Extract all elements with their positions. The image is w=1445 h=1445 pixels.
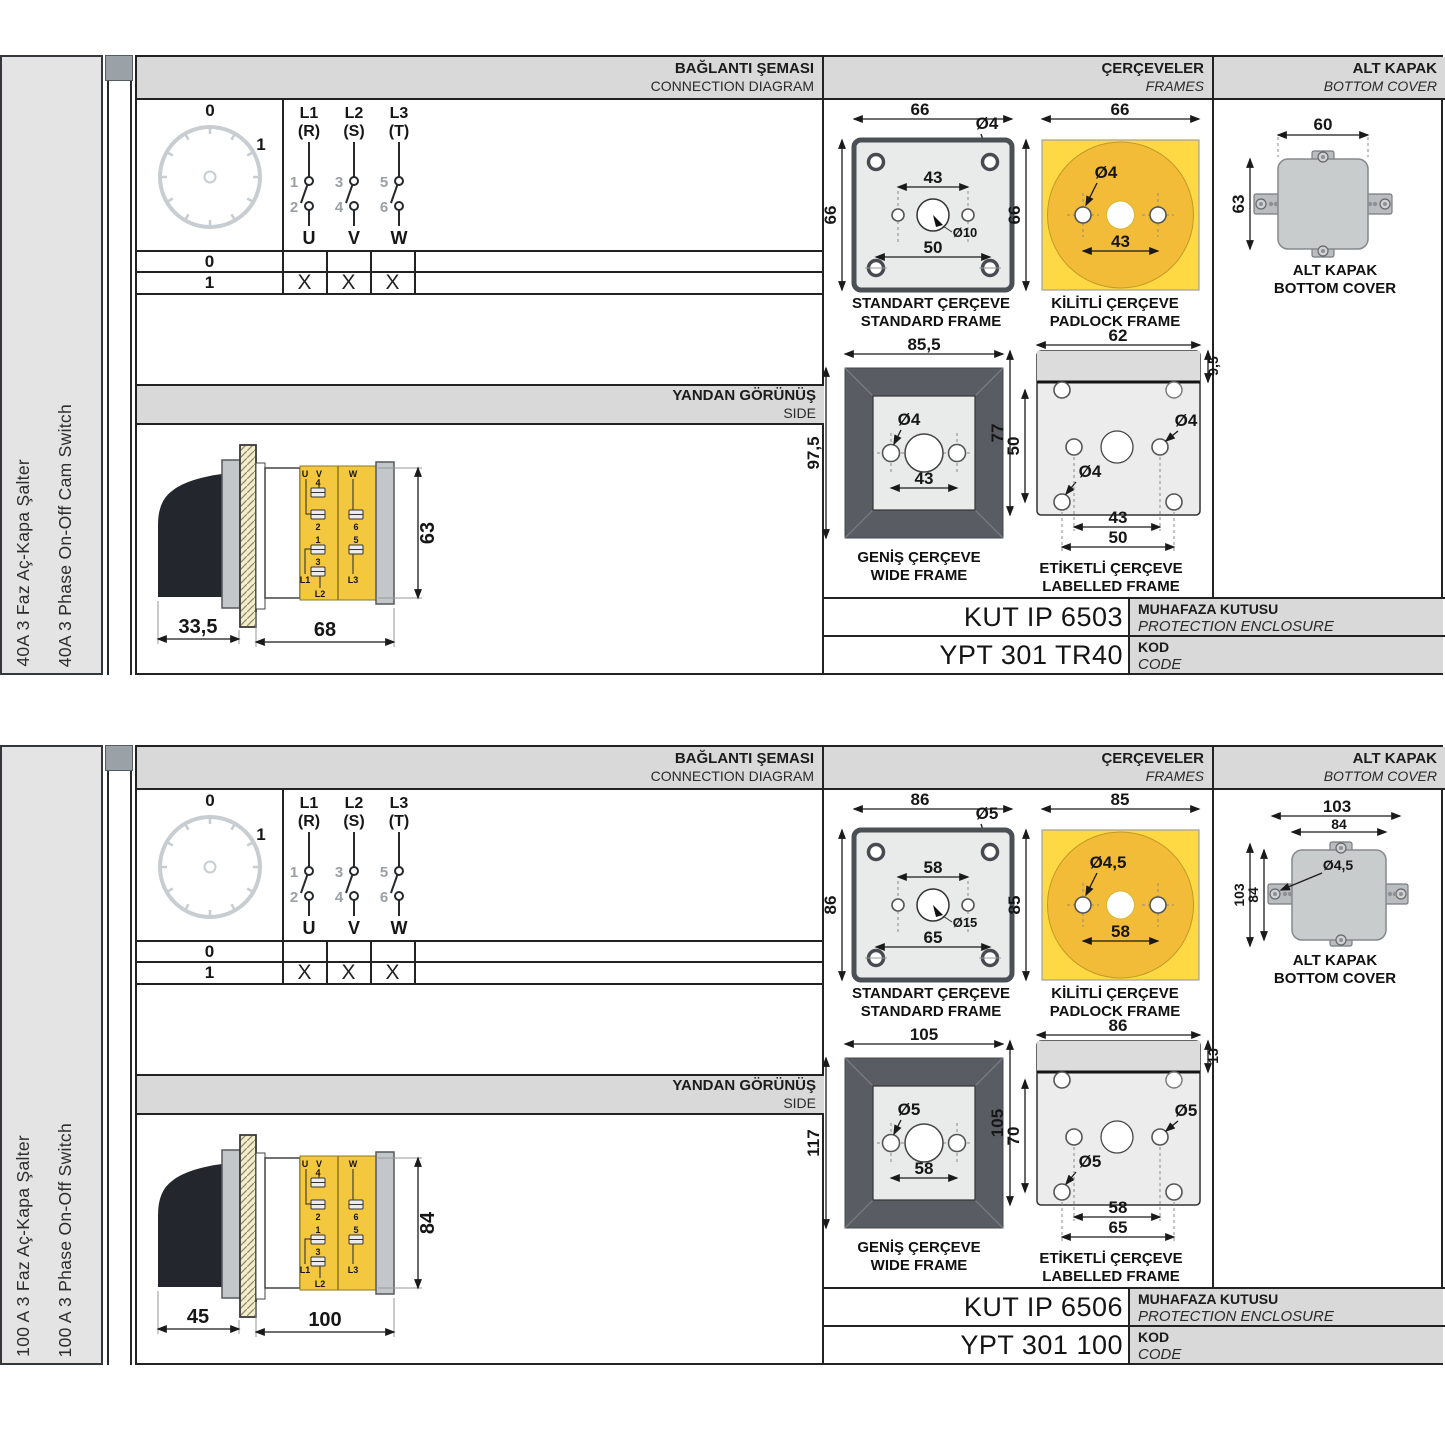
state-mark-u: X [283, 272, 326, 293]
header-bottom-cover-tr: ALT KAPAK [1353, 60, 1437, 78]
svg-text:(S): (S) [343, 813, 364, 830]
svg-text:Ø5: Ø5 [898, 1100, 921, 1119]
dim-width: 60 [1314, 115, 1333, 134]
panel-hatched [240, 1135, 256, 1317]
product-title-english: 40A 3 Phase On-Off Cam Switch [55, 404, 76, 667]
dim-width-outer: 103 [1323, 797, 1351, 816]
enclosure-code: KUT IP 6506 [824, 1289, 1128, 1325]
header-frames: ÇERÇEVELER FRAMES [824, 747, 1212, 788]
labelled-frame-drawing: 62 9,5 Ø4 Ø4 77 50 43 [998, 329, 1224, 561]
svg-text:13: 13 [1205, 1048, 1221, 1064]
state-mark-v: X [327, 272, 370, 293]
spine-strip [107, 81, 132, 675]
end-cap [376, 1152, 394, 1294]
switch-body: U V W 4 2 1 3 6 5 L1 L2 L3 [300, 1156, 376, 1290]
product-title-turkish: 40A 3 Faz Aç-Kapa Şalter [13, 459, 34, 667]
enclosure-code: KUT IP 6503 [824, 599, 1128, 635]
side-view-drawing: U V W 4 2 1 3 6 5 L1 L2 L3 33,5 68 [142, 430, 472, 670]
product-code-label: KOD CODE [1130, 1327, 1443, 1363]
svg-text:2: 2 [315, 1212, 320, 1222]
dial-position-1: 1 [256, 135, 265, 154]
wide-frame-caption: GENİŞ ÇERÇEVEWIDE FRAME [814, 549, 1024, 586]
svg-text:1: 1 [290, 864, 298, 881]
svg-text:(S): (S) [343, 123, 364, 140]
divider-line [414, 940, 416, 985]
dim-width-inner: 84 [1331, 816, 1347, 832]
dim-hole-span: 43 [915, 469, 934, 488]
labelled-frame-drawing: 86 13 Ø5 Ø5 105 70 58 [998, 1019, 1224, 1251]
svg-text:86: 86 [1109, 1016, 1128, 1035]
dim-label-strip: 9,5 [1205, 356, 1221, 376]
labelled-frame-caption: ETİKETLİ ÇERÇEVELABELLED FRAME [998, 1250, 1224, 1287]
panel-hatched [240, 445, 256, 627]
svg-text:1: 1 [256, 825, 265, 844]
svg-text:L2: L2 [315, 1279, 326, 1289]
dim-hole: Ø4,5 [1323, 857, 1354, 873]
svg-text:L2: L2 [345, 105, 364, 122]
svg-text:L3: L3 [390, 795, 409, 812]
svg-text:V: V [348, 228, 360, 248]
svg-text:3: 3 [315, 1247, 320, 1257]
svg-text:U: U [303, 918, 316, 938]
svg-text:Ø5: Ø5 [1175, 1101, 1198, 1120]
dim-width: 66 [911, 100, 930, 119]
svg-text:6: 6 [353, 522, 358, 532]
rotary-dial: 0 1 [159, 791, 266, 918]
svg-text:58: 58 [1111, 922, 1130, 941]
dim-span-inner: 43 [1109, 508, 1128, 527]
connection-diagram: 0 1 L1 (R) 1 2 U L2 (S) [137, 100, 822, 250]
svg-text:L2: L2 [315, 589, 326, 599]
svg-text:65: 65 [1109, 1218, 1128, 1237]
svg-text:W: W [391, 228, 408, 248]
divider-line [137, 983, 824, 985]
side-view-header-en: SIDE [783, 405, 816, 422]
svg-text:58: 58 [915, 1159, 934, 1178]
svg-text:L1: L1 [300, 575, 311, 585]
svg-text:U: U [302, 1159, 309, 1169]
wide-frame-caption: GENİŞ ÇERÇEVEWIDE FRAME [814, 1239, 1024, 1276]
header-connection-diagram: BAĞLANTI ŞEMASI CONNECTION DIAGRAM [137, 57, 822, 98]
svg-text:5: 5 [353, 1225, 358, 1235]
product-title-turkish: 100 A 3 Faz Aç-Kapa Şalter [13, 1135, 34, 1357]
state-mark-v: X [327, 962, 370, 983]
svg-text:(R): (R) [298, 813, 320, 830]
rotary-dial: 0 1 [159, 101, 266, 228]
state-mark-w: X [371, 962, 414, 983]
phase-switch-l2: L2 (S) 3 4 V [335, 795, 365, 938]
svg-text:2: 2 [315, 522, 320, 532]
phase-switch-l2: L2 (S) 3 4 V [335, 105, 365, 248]
dim-corner-hole: Ø4 [976, 114, 999, 133]
svg-text:86: 86 [911, 790, 930, 809]
corner-marker [105, 745, 133, 771]
svg-text:0: 0 [205, 791, 214, 810]
svg-text:3: 3 [315, 557, 320, 567]
dim-hole-b: Ø4 [1079, 462, 1102, 481]
svg-text:6: 6 [380, 199, 388, 216]
svg-text:Ø5: Ø5 [1079, 1152, 1102, 1171]
header-connection-tr: BAĞLANTI ŞEMASI [675, 60, 814, 78]
svg-text:5: 5 [380, 864, 388, 881]
dim-depth: 33,5 [179, 616, 218, 638]
phase-switch-l1: L1 (R) 1 2 U [290, 795, 320, 938]
product-code: YPT 301 TR40 [824, 637, 1128, 673]
dim-hole-a: Ø4 [1175, 411, 1198, 430]
dim-depth: 45 [187, 1306, 209, 1328]
state-mark-w: X [371, 272, 414, 293]
product-code: YPT 301 100 [824, 1327, 1128, 1363]
switch-handle [158, 474, 222, 597]
header-connection-diagram: BAĞLANTI ŞEMASI CONNECTION DIAGRAM [137, 747, 822, 788]
dim-width: 62 [1109, 326, 1128, 345]
svg-text:2: 2 [290, 889, 298, 906]
standard-frame-caption: STANDART ÇERÇEVESTANDARD FRAME [830, 985, 1032, 1022]
svg-text:3: 3 [335, 864, 343, 881]
dim-height: 63 [1229, 195, 1248, 214]
svg-text:L1: L1 [300, 105, 319, 122]
svg-text:4: 4 [315, 478, 320, 488]
bottom-cover-drawing: 103 84 Ø4,5 103 [1240, 802, 1430, 957]
svg-text:(T): (T) [389, 813, 409, 830]
svg-text:L3: L3 [390, 105, 409, 122]
svg-text:Ø4,5: Ø4,5 [1090, 853, 1127, 872]
state-row-1-label: 1 [137, 273, 282, 293]
svg-text:U: U [303, 228, 316, 248]
corner-marker [105, 55, 133, 81]
dim-height: 97,5 [804, 436, 823, 469]
state-mark-u: X [283, 962, 326, 983]
dim-hole: Ø4 [1095, 163, 1118, 182]
labelled-frame-caption: ETİKETLİ ÇERÇEVELABELLED FRAME [998, 560, 1224, 597]
header-frames-en: FRAMES [1146, 78, 1204, 95]
dim-width: 66 [1111, 100, 1130, 119]
header-bottom-cover-en: BOTTOM COVER [1324, 78, 1437, 95]
divider-line [414, 250, 416, 295]
header-bottom-cover: ALT KAPAK BOTTOM COVER [1214, 747, 1445, 788]
svg-text:Ø5: Ø5 [976, 804, 999, 823]
shaft-housing [265, 1158, 300, 1288]
switch-body: U V W 4 2 1 3 6 5 L1 L2 L3 [300, 466, 376, 600]
svg-text:1: 1 [290, 174, 298, 191]
svg-text:L2: L2 [345, 795, 364, 812]
svg-text:W: W [349, 1159, 358, 1169]
bottom-cover-caption: ALT KAPAKBOTTOM COVER [1240, 262, 1430, 299]
svg-text:2: 2 [290, 199, 298, 216]
svg-text:(T): (T) [389, 123, 409, 140]
svg-text:58: 58 [924, 858, 943, 877]
spacer [256, 463, 265, 609]
side-view-header: YANDAN GÖRÜNÜŞ SIDE [137, 1074, 824, 1115]
side-view-header: YANDAN GÖRÜNÜŞ SIDE [137, 384, 824, 425]
end-cap [376, 462, 394, 604]
product-section-40a: 40A 3 Faz Aç-Kapa Şalter 40A 3 Phase On-… [0, 55, 1445, 675]
dim-hole-row-span: 50 [1004, 437, 1023, 456]
product-code-label: KOD CODE [1130, 637, 1443, 673]
svg-text:U: U [302, 469, 309, 479]
svg-text:65: 65 [924, 928, 943, 947]
dim-center-hole: Ø10 [953, 225, 978, 240]
svg-text:117: 117 [804, 1129, 823, 1156]
svg-text:W: W [349, 469, 358, 479]
dim-height: 66 [821, 206, 840, 225]
svg-text:V: V [348, 918, 360, 938]
product-title-english: 100 A 3 Phase On-Off Switch [55, 1123, 76, 1357]
dim-height: 84 [417, 1211, 439, 1234]
side-view-drawing: U V W 4 2 1 3 6 5 L1 L2 L3 45 100 [142, 1120, 472, 1360]
svg-text:L3: L3 [348, 575, 359, 585]
enclosure-code-label: MUHAFAZA KUTUSU PROTECTION ENCLOSURE [1130, 599, 1443, 635]
svg-text:5: 5 [380, 174, 388, 191]
dim-hole-span: 43 [1111, 232, 1130, 251]
dim-length: 68 [314, 619, 336, 641]
spine-strip [107, 771, 132, 1365]
svg-text:85: 85 [1005, 896, 1024, 915]
svg-text:W: W [391, 918, 408, 938]
dim-hole: Ø4 [898, 410, 921, 429]
state-row-1-label: 1 [137, 963, 282, 983]
svg-text:4: 4 [315, 1168, 320, 1178]
dim-span-outer: 50 [1109, 528, 1128, 547]
divider-line [137, 293, 824, 295]
product-title-sidebar: 100 A 3 Faz Aç-Kapa Şalter 100 A 3 Phase… [0, 745, 103, 1365]
state-row-0-label: 0 [137, 252, 282, 271]
svg-text:6: 6 [353, 1212, 358, 1222]
header-frames-tr: ÇERÇEVELER [1101, 60, 1204, 78]
header-frames: ÇERÇEVELER FRAMES [824, 57, 1212, 98]
svg-text:105: 105 [910, 1025, 938, 1044]
svg-text:Ø15: Ø15 [953, 915, 978, 930]
front-plate [222, 1150, 240, 1298]
enclosure-code-label: MUHAFAZA KUTUSU PROTECTION ENCLOSURE [1130, 1289, 1443, 1325]
phase-switch-l1: L1 (R) 1 2 U [290, 105, 320, 248]
svg-text:4: 4 [335, 199, 344, 216]
dial-position-0: 0 [205, 101, 214, 120]
svg-text:1: 1 [315, 535, 320, 545]
side-view-header-tr: YANDAN GÖRÜNÜŞ [672, 387, 816, 405]
shaft-housing [265, 468, 300, 598]
dim-hole-span: 43 [924, 168, 943, 187]
dim-height-inner: 84 [1245, 887, 1261, 903]
dim-height: 66 [1005, 206, 1024, 225]
datasheet-panel: BAĞLANTI ŞEMASI CONNECTION DIAGRAM ÇERÇE… [135, 55, 1443, 675]
dim-height: 63 [417, 522, 439, 544]
datasheet-panel: BAĞLANTI ŞEMASI CONNECTION DIAGRAM ÇERÇE… [135, 745, 1443, 1365]
svg-text:4: 4 [335, 889, 344, 906]
connection-diagram: 0 1 L1 (R) 1 2 U L2 (S) [137, 790, 822, 940]
dim-width: 85,5 [907, 335, 940, 354]
svg-text:L1: L1 [300, 795, 319, 812]
svg-text:L1: L1 [300, 1265, 311, 1275]
state-row-0-label: 0 [137, 942, 282, 961]
product-section-100a: 100 A 3 Faz Aç-Kapa Şalter 100 A 3 Phase… [0, 745, 1445, 1365]
dim-lower-span: 50 [924, 238, 943, 257]
header-bottom-cover: ALT KAPAK BOTTOM COVER [1214, 57, 1445, 98]
bottom-cover-caption: ALT KAPAKBOTTOM COVER [1240, 952, 1430, 989]
product-title-sidebar: 40A 3 Faz Aç-Kapa Şalter 40A 3 Phase On-… [0, 55, 103, 675]
svg-text:58: 58 [1109, 1198, 1128, 1217]
svg-text:86: 86 [821, 896, 840, 915]
phase-switch-l3: L3 (T) 5 6 W [380, 795, 409, 938]
svg-text:L3: L3 [348, 1265, 359, 1275]
svg-text:(R): (R) [298, 123, 320, 140]
svg-text:3: 3 [335, 174, 343, 191]
spacer [256, 1153, 265, 1299]
svg-text:85: 85 [1111, 790, 1130, 809]
header-connection-en: CONNECTION DIAGRAM [651, 78, 814, 95]
standard-frame-caption: STANDART ÇERÇEVESTANDARD FRAME [830, 295, 1032, 332]
svg-text:6: 6 [380, 889, 388, 906]
bottom-cover-drawing: 60 63 [1240, 115, 1430, 265]
svg-text:5: 5 [353, 535, 358, 545]
svg-text:70: 70 [1004, 1127, 1023, 1146]
switch-handle [158, 1164, 222, 1287]
phase-switch-l3: L3 (T) 5 6 W [380, 105, 409, 248]
dim-length: 100 [308, 1309, 341, 1331]
svg-text:1: 1 [315, 1225, 320, 1235]
front-plate [222, 460, 240, 608]
